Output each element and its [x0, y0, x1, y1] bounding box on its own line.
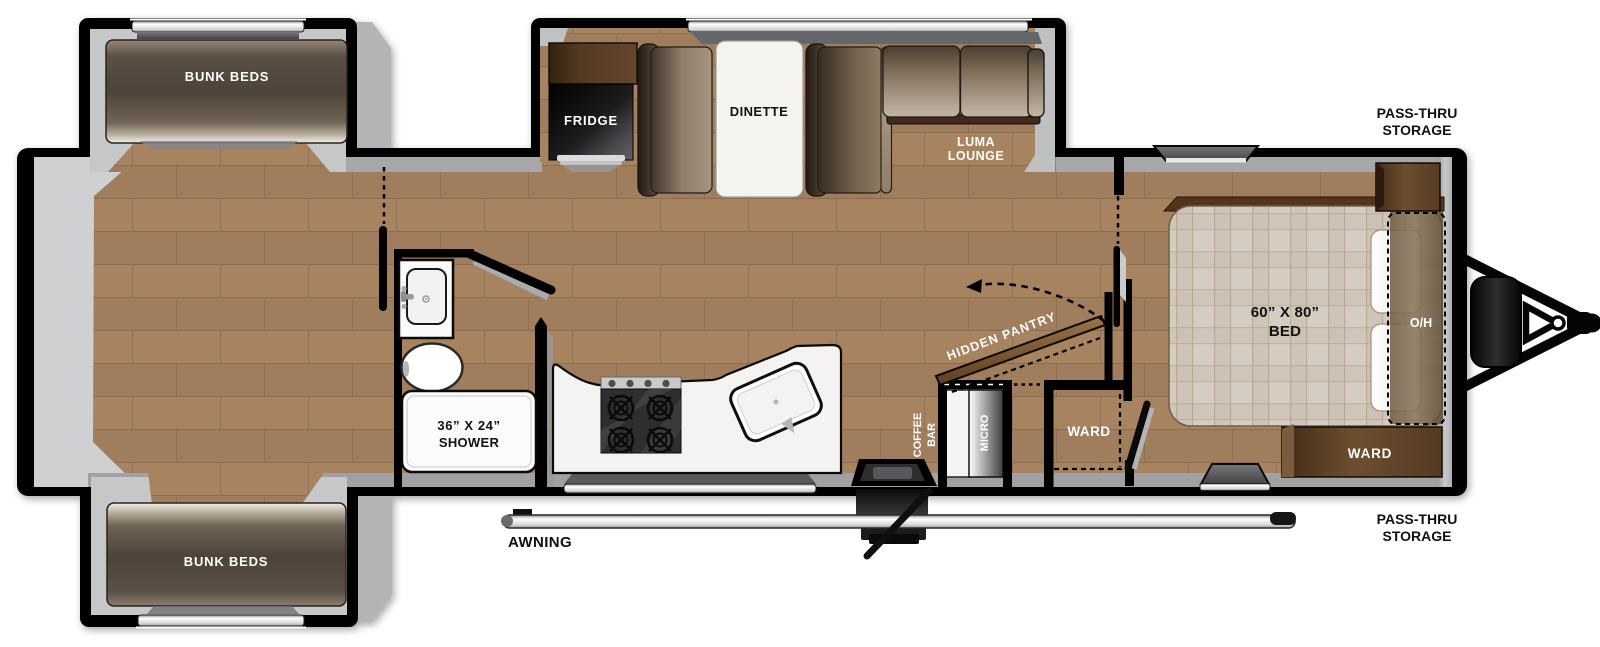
svg-text:O/H: O/H — [1410, 316, 1432, 330]
svg-text:FRIDGE: FRIDGE — [564, 113, 618, 128]
svg-text:STORAGE: STORAGE — [1383, 122, 1452, 138]
svg-text:SHOWER: SHOWER — [439, 435, 500, 450]
svg-text:STORAGE: STORAGE — [1383, 528, 1452, 544]
svg-text:LUMA: LUMA — [957, 135, 995, 149]
svg-text:BUNK BEDS: BUNK BEDS — [184, 554, 268, 569]
svg-text:MICRO: MICRO — [979, 414, 991, 451]
svg-text:PASS-THRU: PASS-THRU — [1377, 511, 1458, 527]
svg-text:BAR: BAR — [926, 423, 938, 447]
svg-text:36” X 24”: 36” X 24” — [437, 418, 500, 433]
svg-text:BED: BED — [1269, 323, 1301, 340]
svg-text:BUNK BEDS: BUNK BEDS — [185, 69, 269, 84]
svg-text:60” X 80”: 60” X 80” — [1251, 304, 1320, 321]
svg-text:LOUNGE: LOUNGE — [948, 149, 1004, 163]
svg-text:WARD: WARD — [1348, 446, 1392, 461]
svg-text:AWNING: AWNING — [508, 534, 572, 551]
svg-text:WARD: WARD — [1067, 424, 1110, 439]
svg-text:DINETTE: DINETTE — [730, 104, 788, 119]
svg-text:PASS-THRU: PASS-THRU — [1377, 105, 1458, 121]
svg-text:COFFEE: COFFEE — [912, 413, 924, 458]
